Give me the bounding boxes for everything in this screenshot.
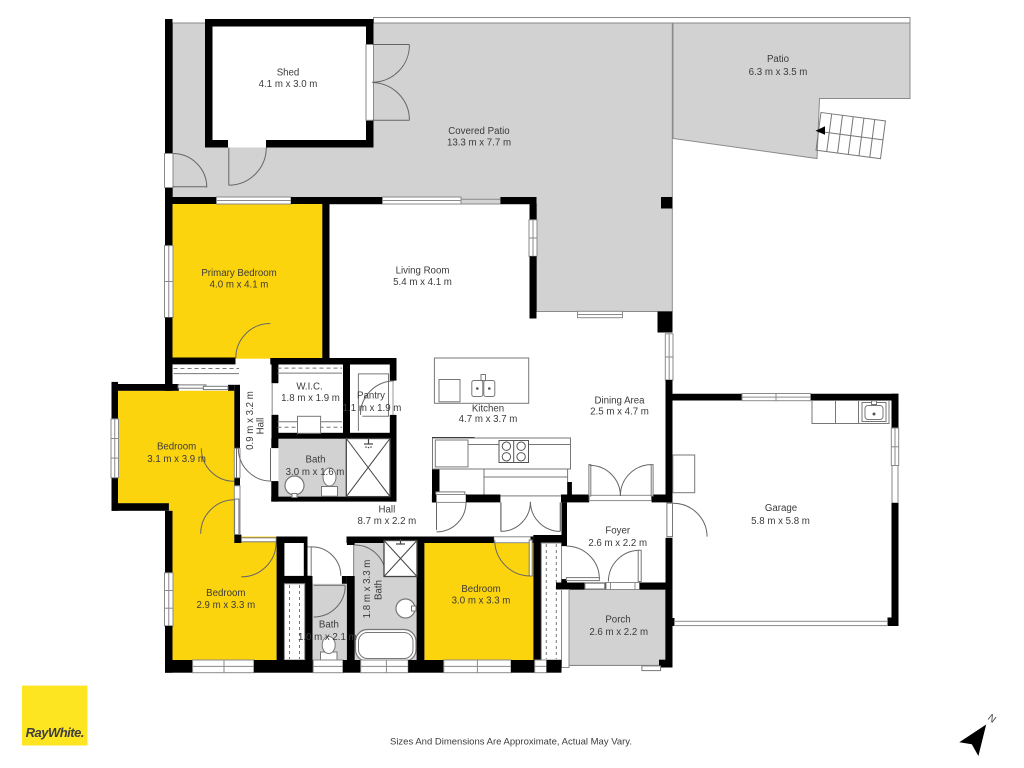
svg-text:5.8 m x 5.8 m: 5.8 m x 5.8 m	[751, 516, 810, 527]
svg-text:Bedroom: Bedroom	[157, 442, 196, 453]
svg-text:1.8 m x 3.3 m: 1.8 m x 3.3 m	[362, 560, 373, 619]
svg-text:Bath: Bath	[374, 580, 385, 600]
svg-text:3.0 m x 1.6 m: 3.0 m x 1.6 m	[286, 467, 345, 478]
svg-text:1.1 m x 1.9 m: 1.1 m x 1.9 m	[343, 403, 402, 414]
svg-text:4.1 m x 3.0 m: 4.1 m x 3.0 m	[259, 79, 318, 90]
svg-text:2.9 m x 3.3 m: 2.9 m x 3.3 m	[196, 600, 255, 611]
svg-text:Primary Bedroom: Primary Bedroom	[201, 268, 276, 279]
svg-text:Foyer: Foyer	[605, 526, 631, 537]
svg-text:Shed: Shed	[277, 68, 300, 79]
svg-text:Dining Area: Dining Area	[594, 396, 645, 407]
svg-text:Bath: Bath	[306, 455, 326, 466]
svg-text:1.0 m x 2.1 m: 1.0 m x 2.1 m	[298, 632, 357, 643]
svg-text:Living Room: Living Room	[396, 266, 450, 277]
svg-text:3.0 m x 3.3 m: 3.0 m x 3.3 m	[452, 595, 511, 606]
svg-text:W.I.C.: W.I.C.	[296, 382, 322, 393]
svg-text:Garage: Garage	[765, 503, 797, 514]
svg-text:5.4 m x 4.1 m: 5.4 m x 4.1 m	[393, 277, 452, 288]
svg-text:13.3 m x 7.7 m: 13.3 m x 7.7 m	[447, 138, 511, 149]
svg-text:6.3 m x 3.5 m: 6.3 m x 3.5 m	[749, 67, 808, 78]
svg-text:Covered Patio: Covered Patio	[448, 126, 509, 137]
svg-text:Kitchen: Kitchen	[472, 404, 504, 415]
svg-text:Bedroom: Bedroom	[461, 584, 500, 595]
svg-text:4.7 m x 3.7 m: 4.7 m x 3.7 m	[459, 414, 518, 425]
svg-text:0.9 m x 3.2 m: 0.9 m x 3.2 m	[245, 391, 256, 450]
svg-text:Hall: Hall	[255, 418, 266, 435]
svg-text:Patio: Patio	[767, 54, 789, 65]
svg-text:RayWhite.: RayWhite.	[26, 725, 84, 740]
svg-text:8.7 m x 2.2 m: 8.7 m x 2.2 m	[358, 516, 417, 527]
svg-text:4.0 m x 4.1 m: 4.0 m x 4.1 m	[210, 280, 269, 291]
svg-text:Hall: Hall	[379, 505, 396, 516]
svg-text:2.6 m x 2.2 m: 2.6 m x 2.2 m	[588, 538, 647, 549]
svg-text:Bath: Bath	[319, 620, 339, 631]
svg-text:3.1 m x 3.9 m: 3.1 m x 3.9 m	[147, 454, 206, 465]
svg-text:2.5 m x 4.7 m: 2.5 m x 4.7 m	[590, 407, 649, 418]
svg-text:Sizes And Dimensions Are Appro: Sizes And Dimensions Are Approximate, Ac…	[390, 737, 632, 748]
svg-text:Bedroom: Bedroom	[206, 588, 245, 599]
svg-text:Pantry: Pantry	[357, 391, 385, 402]
svg-text:2.6 m x 2.2 m: 2.6 m x 2.2 m	[589, 627, 648, 638]
svg-text:1.8 m x 1.9 m: 1.8 m x 1.9 m	[281, 393, 340, 404]
svg-text:Porch: Porch	[605, 615, 630, 626]
